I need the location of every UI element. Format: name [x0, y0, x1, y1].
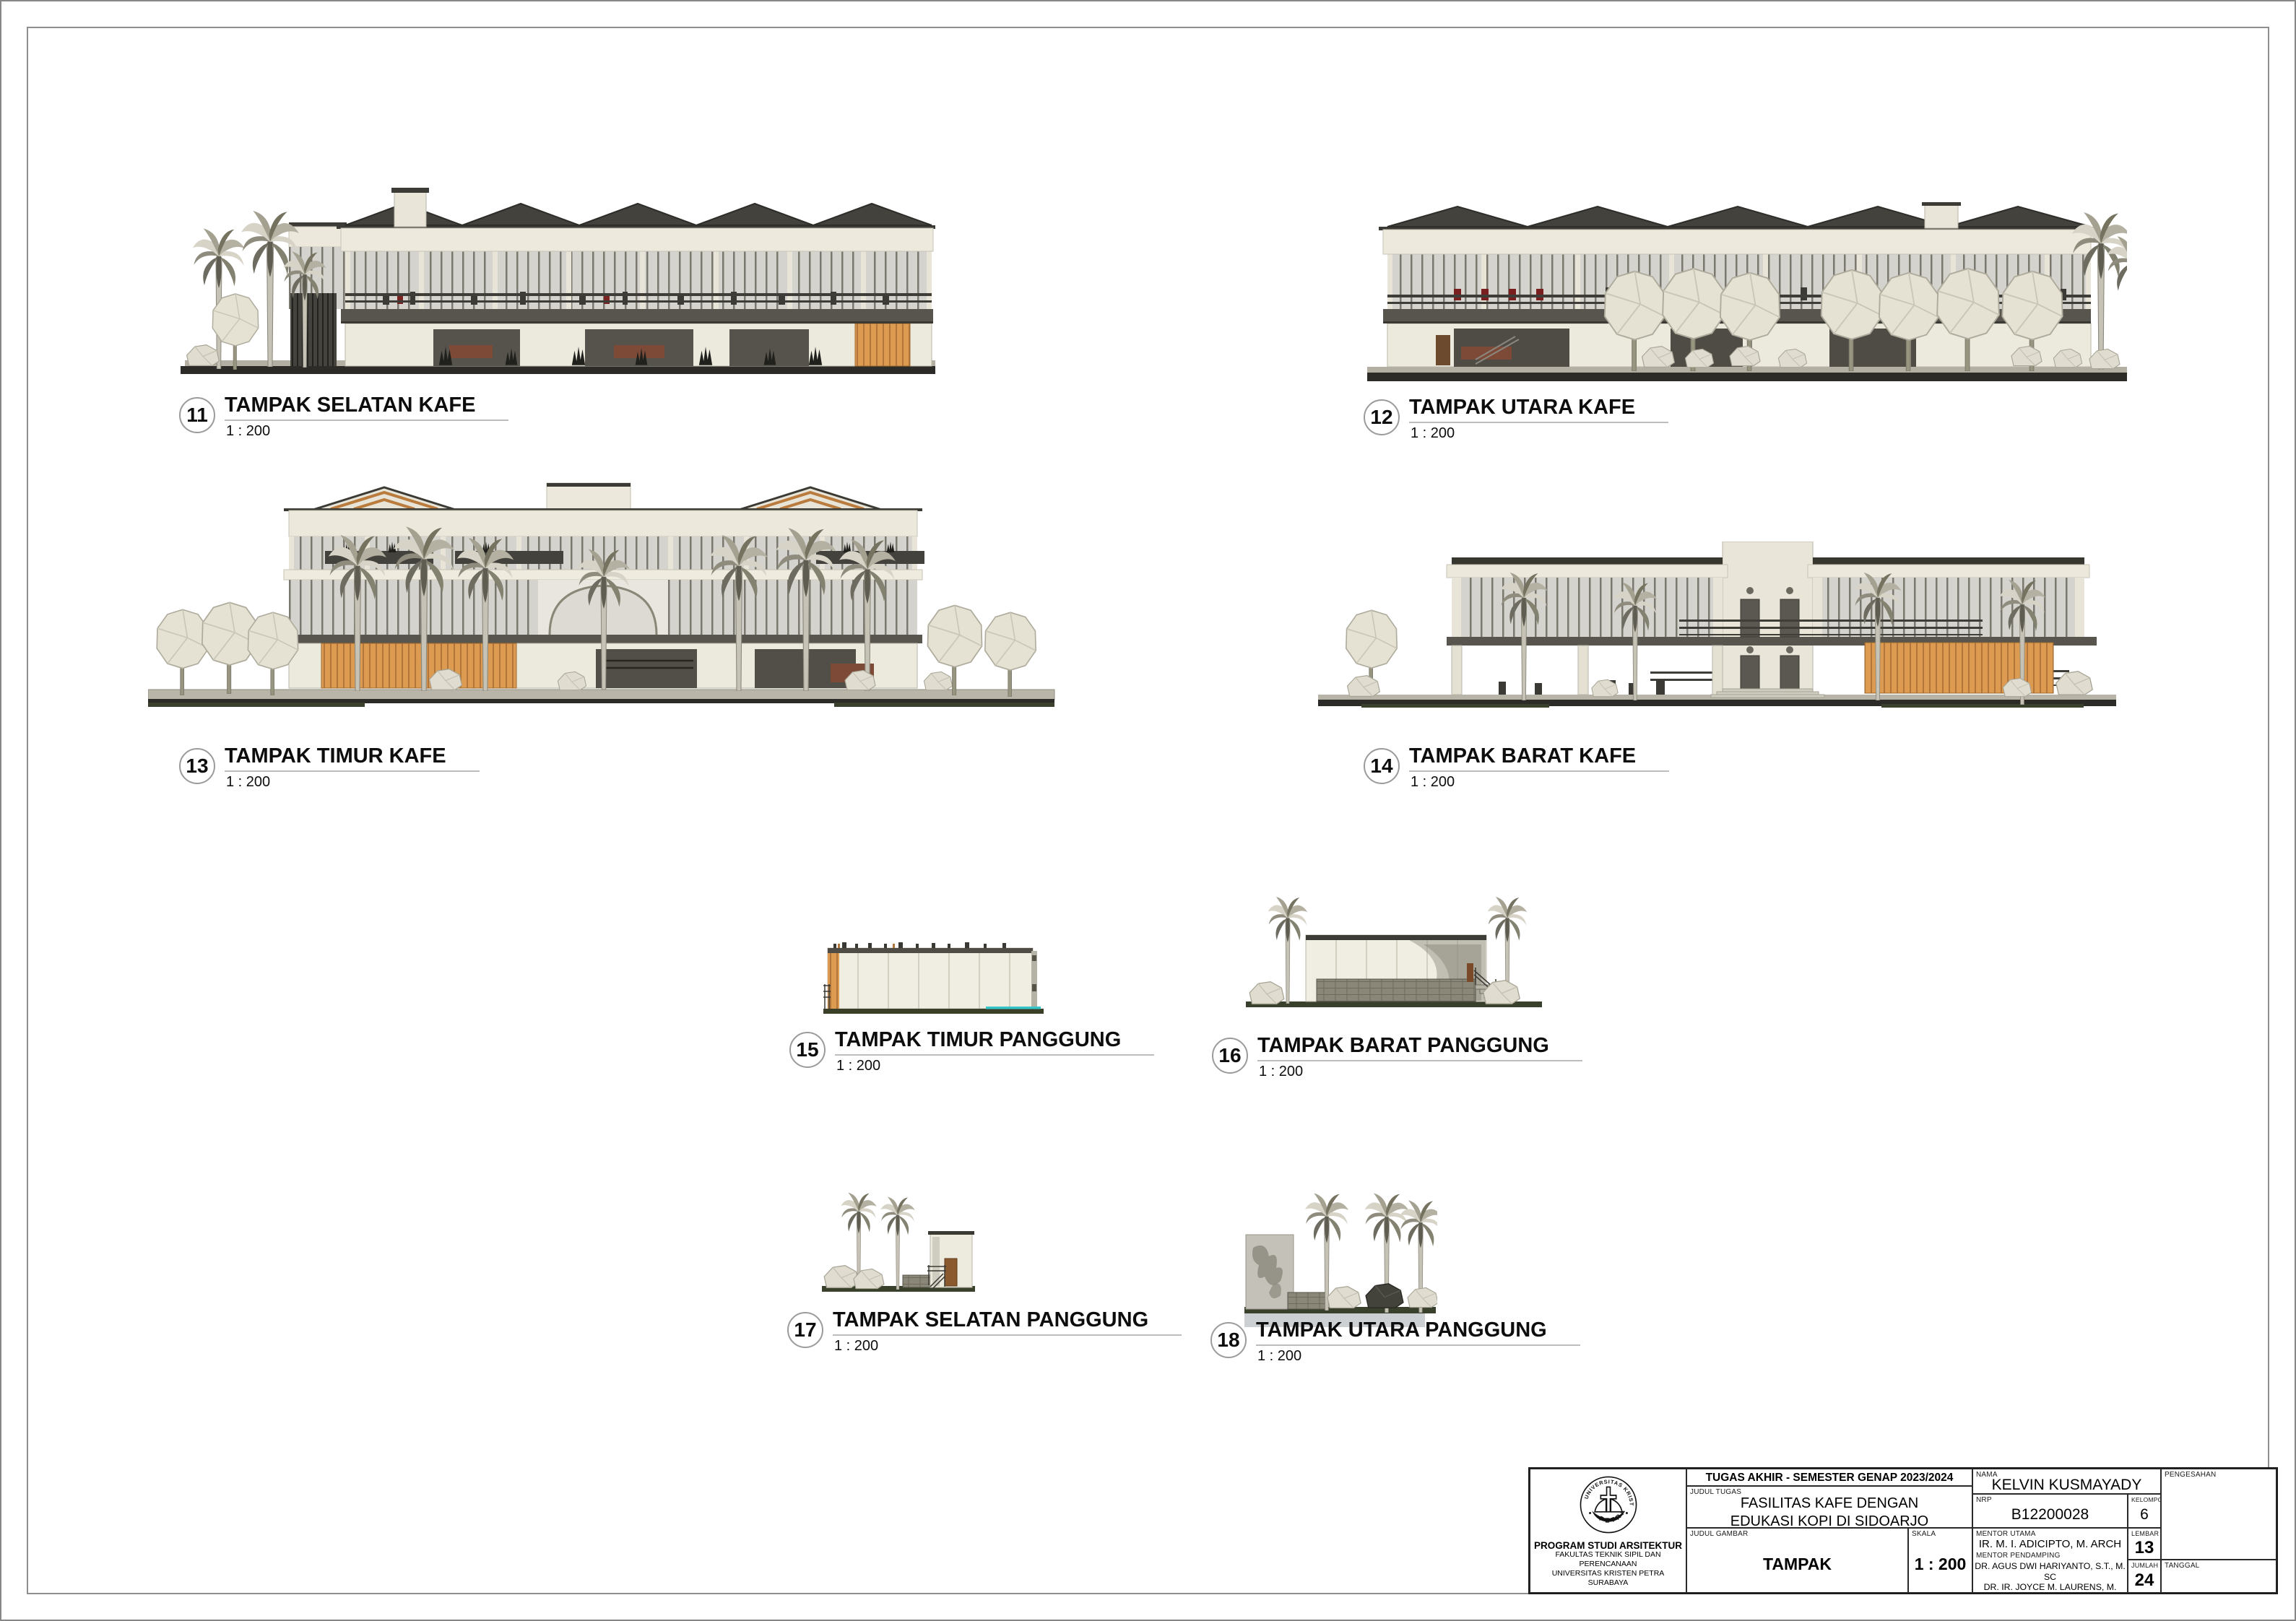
drawing-number-badge: 12: [1364, 399, 1400, 435]
drawing-label-18: 18 TAMPAK UTARA PANGGUNG 1 : 200: [1210, 1318, 1580, 1365]
drawing-label-15: 15 TAMPAK TIMUR PANGGUNG 1 : 200: [789, 1028, 1154, 1074]
drawing-number-badge: 14: [1364, 748, 1400, 784]
mentor-pendamping-label: MENTOR PENDAMPING: [1976, 1552, 2061, 1560]
judul-gambar-cell: JUDUL GAMBAR TAMPAK: [1686, 1528, 1908, 1593]
mentor-pendamping-1: DR. AGUS DWI HARIYANTO, S.T., M. SC: [1973, 1561, 2127, 1582]
kelompok-label: KELOMPOK: [2131, 1496, 2161, 1503]
pengesahan-cell: PENGESAHAN: [2161, 1469, 2276, 1560]
kelompok-cell: KELOMPOK 6: [2128, 1494, 2161, 1528]
drawing-label-12: 12 TAMPAK UTARA KAFE 1 : 200: [1364, 396, 1668, 442]
drawing-scale: 1 : 200: [225, 423, 508, 440]
skala-label: SKALA: [1912, 1530, 1936, 1538]
drawing-title: TAMPAK SELATAN PANGGUNG: [833, 1308, 1182, 1336]
header-cell: TUGAS AKHIR - SEMESTER GENAP 2023/2024: [1686, 1469, 1972, 1486]
skala-cell: SKALA 1 : 200: [1908, 1528, 1972, 1593]
drawing-title: TAMPAK SELATAN KAFE: [225, 394, 508, 421]
petra-logo: UNIVERSITAS KRISTEN PETRA: [1530, 1475, 1686, 1534]
nrp-cell: NRP B12200028: [1972, 1494, 2128, 1528]
drawing-label-14: 14 TAMPAK BARAT KAFE 1 : 200: [1364, 744, 1669, 791]
judul-tugas-cell: JUDUL TUGAS FASILITAS KAFE DENGAN EDUKAS…: [1686, 1486, 1972, 1528]
sheet-header: TUGAS AKHIR - SEMESTER GENAP 2023/2024: [1687, 1472, 1972, 1485]
project-title-line2: EDUKASI KOPI DI SIDOARJO: [1687, 1513, 1972, 1528]
mentor-utama-label: MENTOR UTAMA: [1976, 1530, 2036, 1538]
drawing-title: TAMPAK TIMUR KAFE: [225, 744, 480, 772]
drawing-scale: 1 : 200: [835, 1058, 1154, 1074]
drawing-sheet: 11 TAMPAK SELATAN KAFE 1 : 200 12 TAMPAK…: [0, 0, 2296, 1621]
institution-city: SURABAYA: [1530, 1578, 1686, 1588]
sheet-scale: 1 : 200: [1909, 1555, 1972, 1574]
jumlah-cell: JUMLAH 24: [2128, 1560, 2161, 1593]
drawing-label-11: 11 TAMPAK SELATAN KAFE 1 : 200: [179, 394, 508, 440]
elevation-east-cafe: [148, 479, 1058, 711]
drawing-scale: 1 : 200: [1409, 425, 1668, 442]
elevation-east-stage: [823, 941, 1044, 1014]
institution-university: UNIVERSITAS KRISTEN PETRA: [1530, 1569, 1686, 1578]
drawing-scale: 1 : 200: [225, 774, 480, 791]
drawing-title: TAMPAK UTARA KAFE: [1409, 396, 1668, 423]
tanggal-cell: TANGGAL: [2161, 1560, 2276, 1593]
lembar-cell: LEMBAR 13: [2128, 1528, 2161, 1560]
title-block: UNIVERSITAS KRISTEN PETRA PROGRAM STUDI …: [1528, 1467, 2278, 1594]
institution-faculty: FAKULTAS TEKNIK SIPIL DAN PERENCANAAN: [1530, 1550, 1686, 1569]
project-title-line1: FASILITAS KAFE DENGAN: [1687, 1495, 1972, 1513]
drawing-label-17: 17 TAMPAK SELATAN PANGGUNG 1 : 200: [787, 1308, 1182, 1355]
pengesahan-label: PENGESAHAN: [2165, 1471, 2216, 1479]
jumlah-label: JUMLAH: [2131, 1562, 2158, 1569]
institution-text: PROGRAM STUDI ARSITEKTUR FAKULTAS TEKNIK…: [1530, 1541, 1686, 1588]
nama-cell: NAMA KELVIN KUSMAYADY: [1972, 1469, 2161, 1494]
drawing-number-badge: 18: [1210, 1322, 1247, 1358]
drawing-title: TAMPAK BARAT PANGGUNG: [1257, 1034, 1582, 1061]
institution-program: PROGRAM STUDI ARSITEKTUR: [1530, 1541, 1686, 1550]
drawing-scale: 1 : 200: [1256, 1348, 1580, 1365]
drawing-number-badge: 11: [179, 397, 215, 433]
drawing-number-badge: 16: [1212, 1038, 1248, 1074]
drawing-title: TAMPAK BARAT KAFE: [1409, 744, 1669, 772]
elevation-west-cafe: [1318, 542, 2116, 720]
mentor-pendamping-2: DR. IR. JOYCE M. LAURENS, M. ARCH: [1973, 1582, 2127, 1593]
sheet-number: 13: [2128, 1538, 2160, 1558]
elevation-south-stage: [822, 1190, 1008, 1296]
drawing-label-13: 13 TAMPAK TIMUR KAFE 1 : 200: [179, 744, 480, 791]
lembar-label: LEMBAR: [2131, 1530, 2159, 1537]
drawing-scale: 1 : 200: [833, 1338, 1182, 1355]
elevation-west-stage: [1237, 894, 1549, 1017]
student-name: KELVIN KUSMAYADY: [1973, 1477, 2160, 1494]
drawing-title: TAMPAK UTARA PANGGUNG: [1256, 1318, 1580, 1346]
drawing-title: TAMPAK TIMUR PANGGUNG: [835, 1028, 1154, 1056]
drawing-number-badge: 17: [787, 1312, 823, 1348]
group-number: 6: [2128, 1506, 2160, 1524]
drawing-scale: 1 : 200: [1257, 1064, 1582, 1080]
drawing-number-badge: 13: [179, 748, 215, 784]
tanggal-label: TANGGAL: [2165, 1562, 2199, 1570]
drawing-sheet-title: TAMPAK: [1687, 1555, 1907, 1574]
mentor-cell: MENTOR UTAMA IR. M. I. ADICIPTO, M. ARCH…: [1972, 1528, 2128, 1593]
judul-gambar-label: JUDUL GAMBAR: [1690, 1530, 1748, 1538]
student-id: B12200028: [1973, 1506, 2127, 1524]
drawing-label-16: 16 TAMPAK BARAT PANGGUNG 1 : 200: [1212, 1034, 1582, 1080]
nrp-label: NRP: [1976, 1496, 1992, 1504]
sheet-total: 24: [2128, 1570, 2160, 1591]
institution-cell: UNIVERSITAS KRISTEN PETRA PROGRAM STUDI …: [1530, 1469, 1686, 1593]
mentor-utama-name: IR. M. I. ADICIPTO, M. ARCH: [1973, 1538, 2127, 1550]
drawing-number-badge: 15: [789, 1032, 826, 1068]
elevation-north-cafe: [1367, 202, 2127, 384]
elevation-south-cafe: [181, 185, 935, 375]
drawing-scale: 1 : 200: [1409, 774, 1669, 791]
elevation-north-stage: [1244, 1190, 1437, 1329]
